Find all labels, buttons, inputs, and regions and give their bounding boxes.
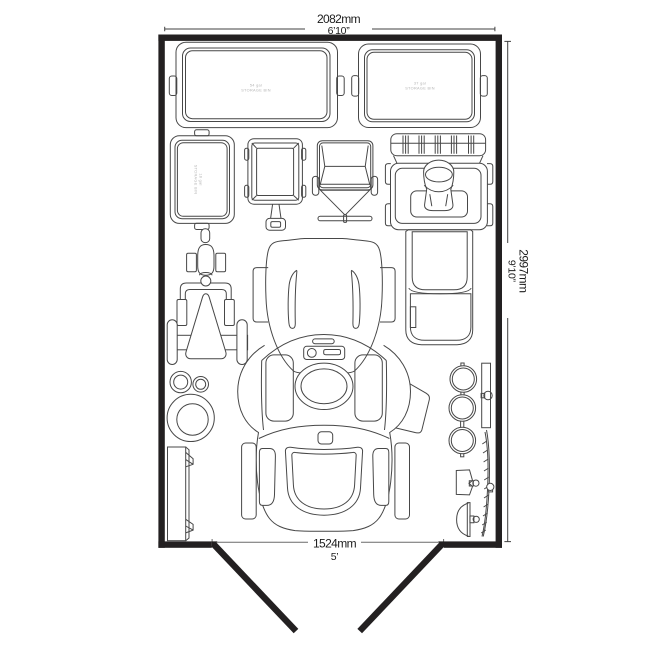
svg-text:37 gal: 37 gal bbox=[414, 82, 426, 86]
svg-text:5’: 5’ bbox=[331, 551, 339, 563]
svg-text:2082mm: 2082mm bbox=[317, 12, 361, 26]
svg-text:STORAGE BIN: STORAGE BIN bbox=[193, 165, 197, 195]
svg-text:18 gal: 18 gal bbox=[199, 173, 203, 185]
svg-text:9’10”: 9’10” bbox=[506, 260, 518, 283]
svg-text:STORAGE BIN: STORAGE BIN bbox=[241, 88, 271, 92]
svg-text:STORAGE BIN: STORAGE BIN bbox=[405, 87, 435, 91]
svg-text:2997mm: 2997mm bbox=[517, 249, 531, 293]
svg-text:54 gal: 54 gal bbox=[250, 83, 262, 87]
svg-text:1524mm: 1524mm bbox=[313, 536, 357, 550]
